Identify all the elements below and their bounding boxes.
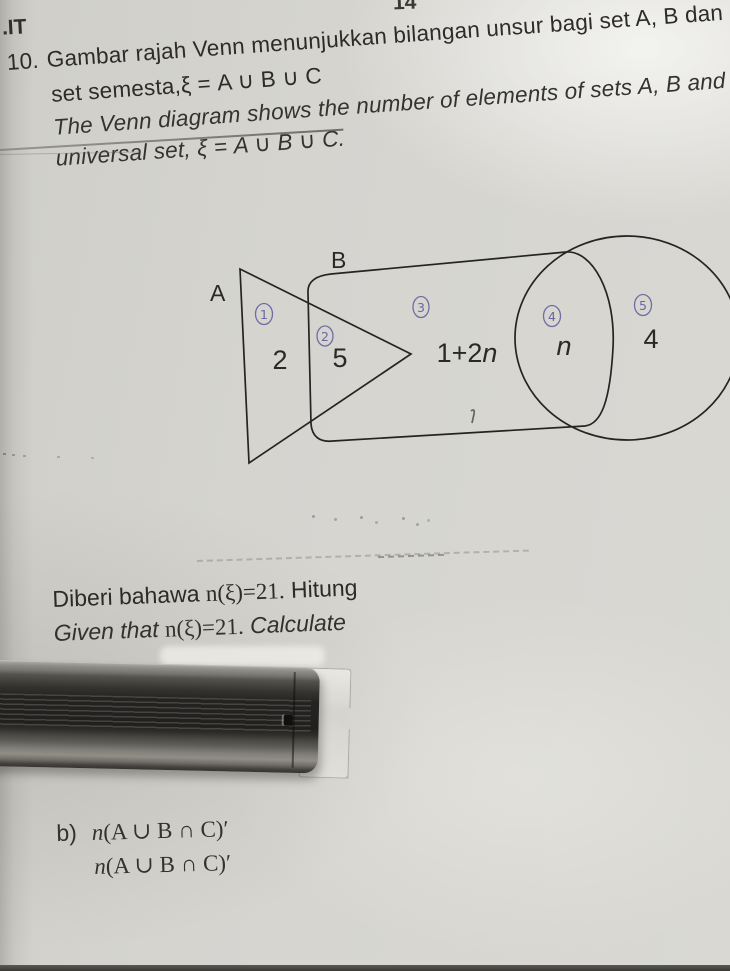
svg-text:1: 1 xyxy=(260,307,268,322)
region-value-c-only: 4 xyxy=(643,324,658,354)
given-math: n(ξ)=21. xyxy=(205,578,285,606)
svg-text:4: 4 xyxy=(548,309,556,324)
part-b-line-1: b) n(A ∪ B ∩ C)′ xyxy=(56,815,230,847)
stray-pen-mark xyxy=(471,410,474,423)
corner-label: .IT xyxy=(1,15,27,40)
region-value-a-only: 2 xyxy=(272,345,287,375)
region-value-b-and-c: n xyxy=(556,331,571,361)
eraser-smudge-line xyxy=(197,550,529,562)
part-b-expression-1: n(A ∪ B ∩ C)′ xyxy=(91,816,228,846)
part-b-line-2: n(A ∪ B ∩ C)′ xyxy=(94,850,231,880)
part-b-expression-2: n(A ∪ B ∩ C)′ xyxy=(94,850,231,879)
handwritten-mark-4: 4 xyxy=(544,306,561,327)
page-number: 14 xyxy=(393,0,417,15)
set-c-circle xyxy=(515,236,730,440)
given-malay-prefix: Diberi bahawa xyxy=(52,580,200,612)
margin-specks xyxy=(3,453,6,455)
workbook-page-photo: .IT 14 10. Gambar rajah Venn menunjukkan… xyxy=(0,0,730,971)
question-number: 10. xyxy=(6,47,48,76)
set-b-stadium xyxy=(308,252,613,441)
handwritten-mark-3: 3 xyxy=(413,297,429,318)
pencil-specks xyxy=(312,515,315,518)
given-english-prefix: Given that xyxy=(53,616,159,646)
given-block: Diberi bahawa n(ξ)=21. Hitung Given that… xyxy=(52,574,359,647)
part-b-label: b) xyxy=(56,819,77,847)
set-b-label: B xyxy=(331,247,346,273)
svg-text:2: 2 xyxy=(321,329,329,344)
region-value-a-and-b: 5 xyxy=(332,343,347,373)
svg-text:5: 5 xyxy=(639,298,647,313)
part-b-block: b) n(A ∪ B ∩ C)′ n(A ∪ B ∩ C)′ xyxy=(56,815,231,881)
given-line-malay: Diberi bahawa n(ξ)=21. Hitung xyxy=(52,574,358,613)
given-math-en: n(ξ)=21. xyxy=(164,614,244,642)
set-a-label: A xyxy=(210,280,226,306)
ruler-latch-notch xyxy=(284,714,293,725)
ruler-paper-highlight xyxy=(160,646,325,666)
given-line-english: Given that n(ξ)=21. Calculate xyxy=(53,608,359,647)
handwritten-mark-2: 2 xyxy=(317,326,333,346)
region-value-b-only: 1+2n xyxy=(437,338,498,368)
given-english-suffix: Calculate xyxy=(250,609,347,639)
given-malay-suffix: Hitung xyxy=(290,574,357,603)
question-block: 10. Gambar rajah Venn menunjukkan bilang… xyxy=(6,0,730,175)
page-bottom-edge xyxy=(0,965,730,971)
svg-text:3: 3 xyxy=(417,300,425,315)
set-a-triangle xyxy=(240,269,411,463)
ruler-object xyxy=(0,660,320,773)
handwritten-mark-5: 5 xyxy=(635,295,652,316)
handwritten-mark-1: 1 xyxy=(256,304,273,325)
